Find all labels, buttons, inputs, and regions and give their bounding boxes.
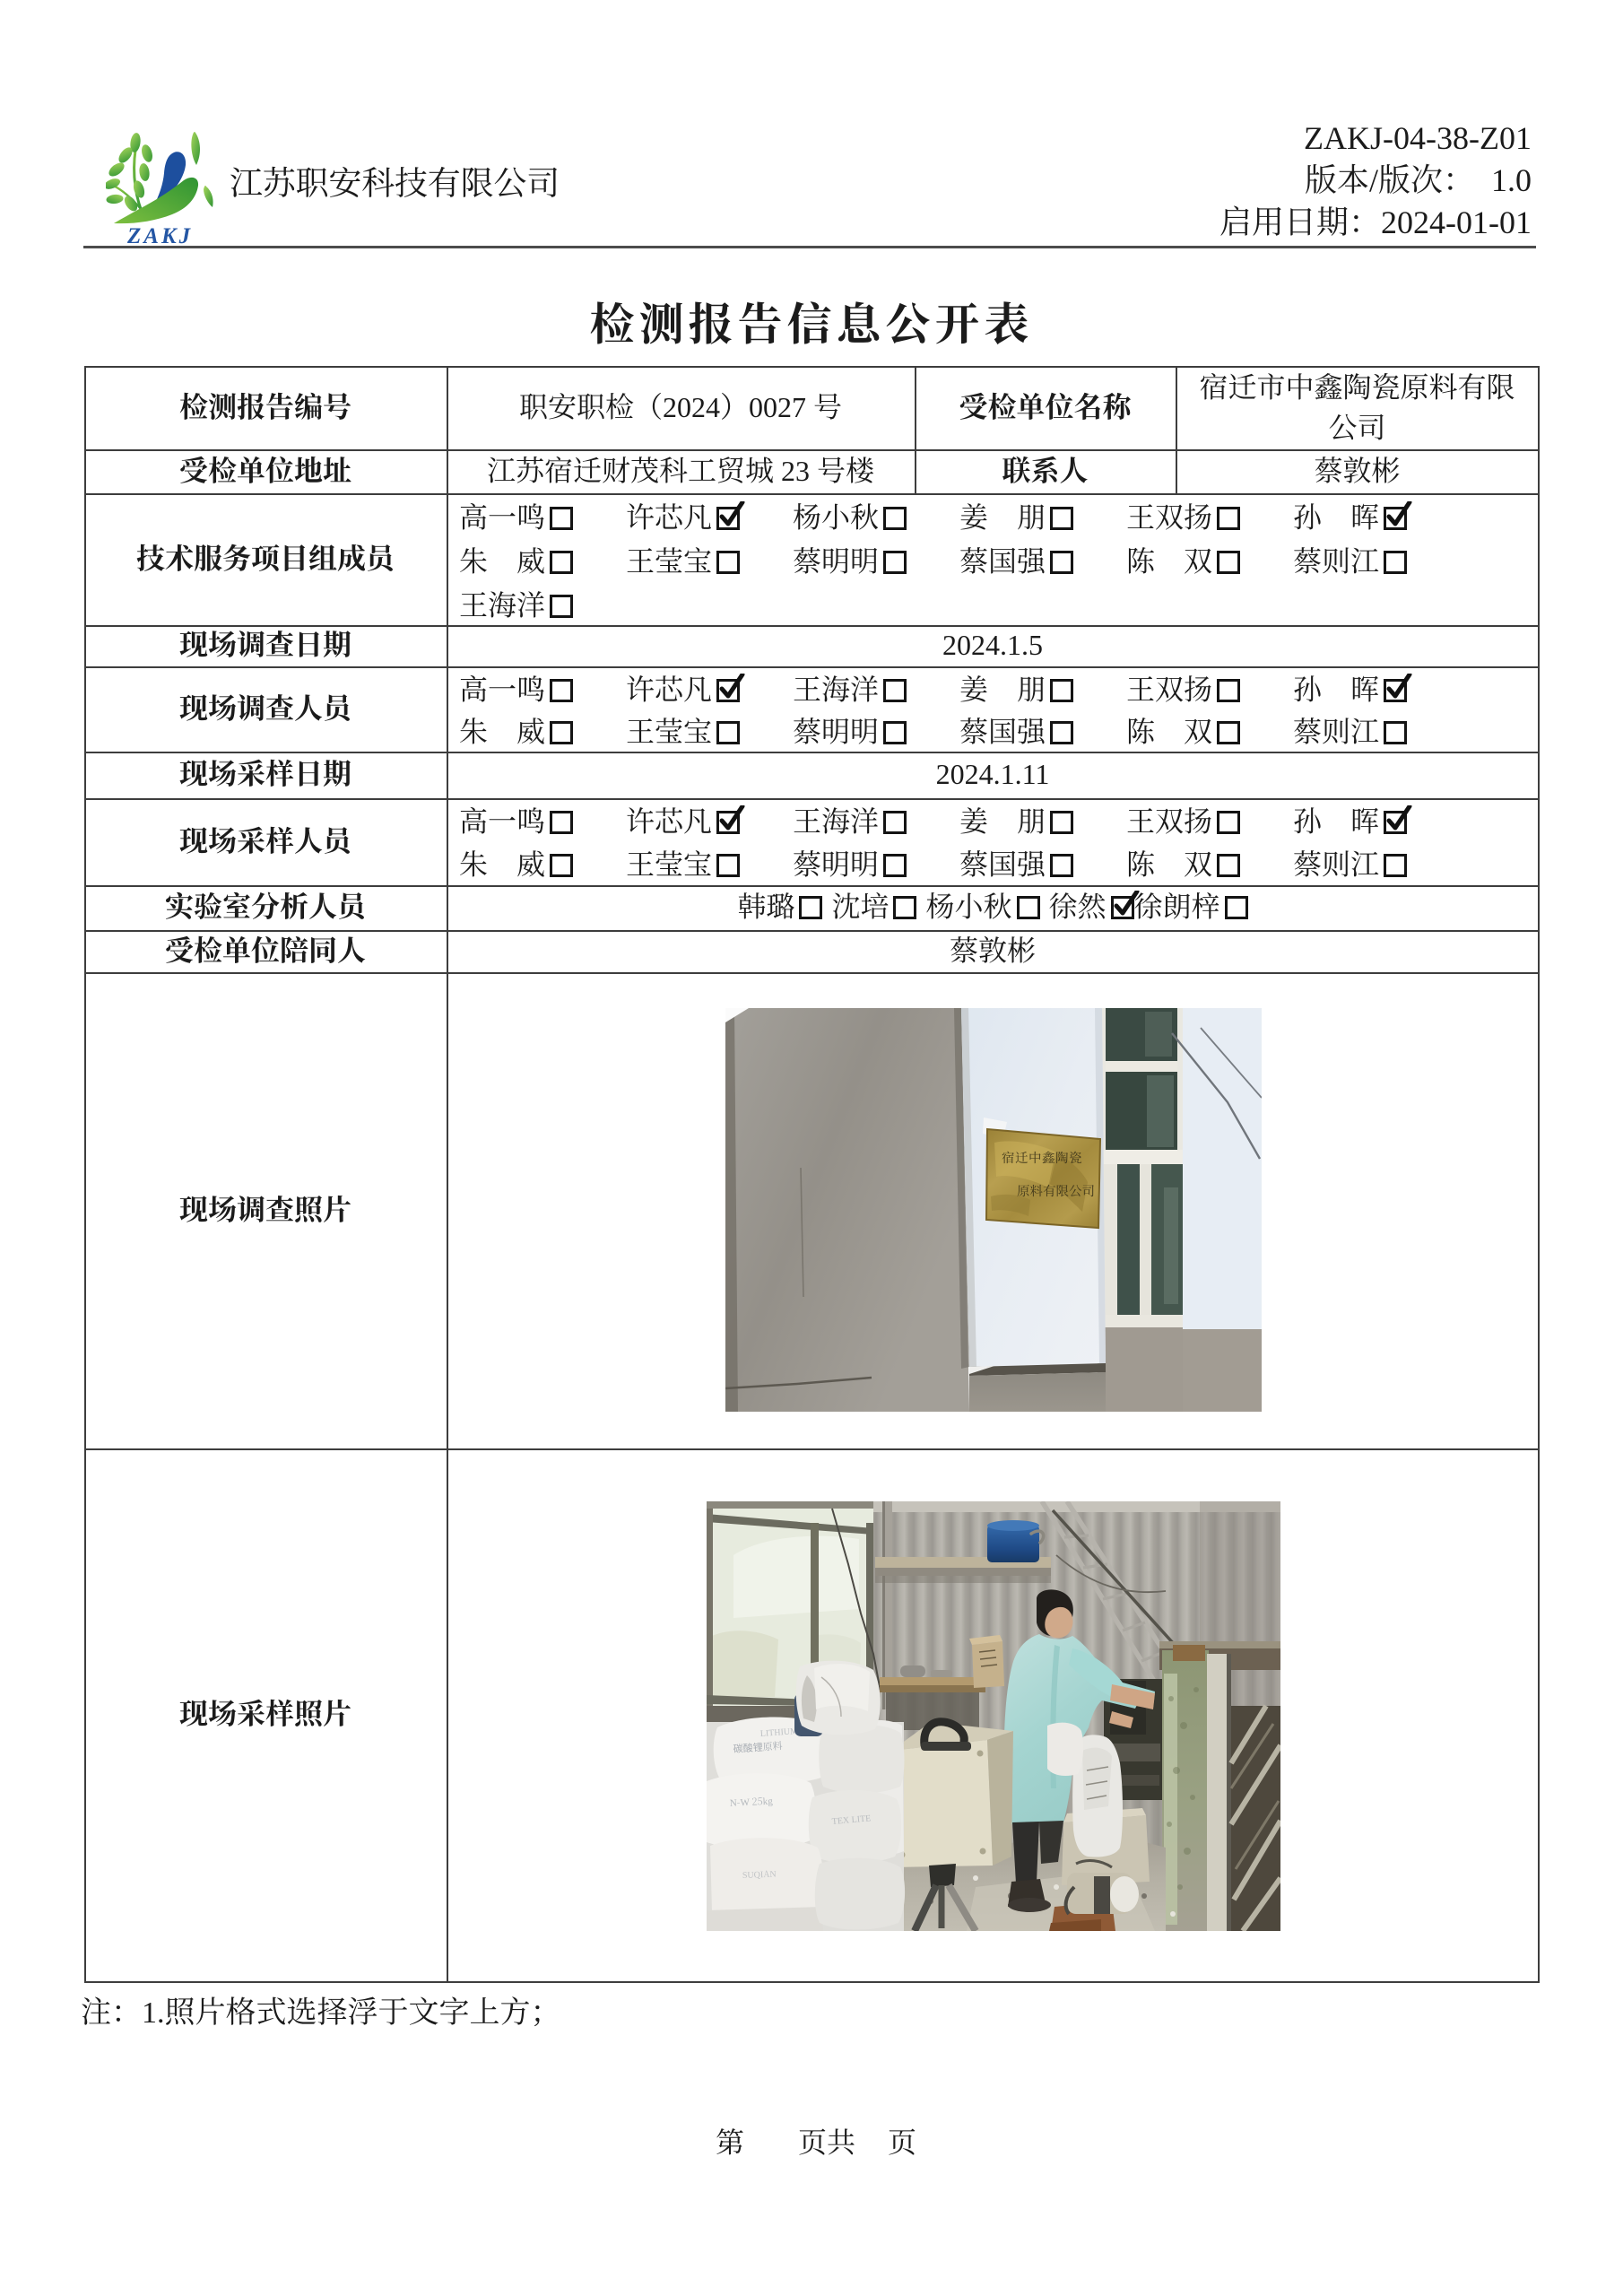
svg-text:LITHIUM: LITHIUM [759,1723,798,1739]
svg-text:N-W 25kg: N-W 25kg [729,1793,773,1810]
svg-text:宿迁中鑫陶瓷: 宿迁中鑫陶瓷 [1002,1148,1082,1167]
svg-text:原料有限公司: 原料有限公司 [1017,1181,1095,1200]
svg-text:SUQIAN: SUQIAN [742,1866,777,1881]
